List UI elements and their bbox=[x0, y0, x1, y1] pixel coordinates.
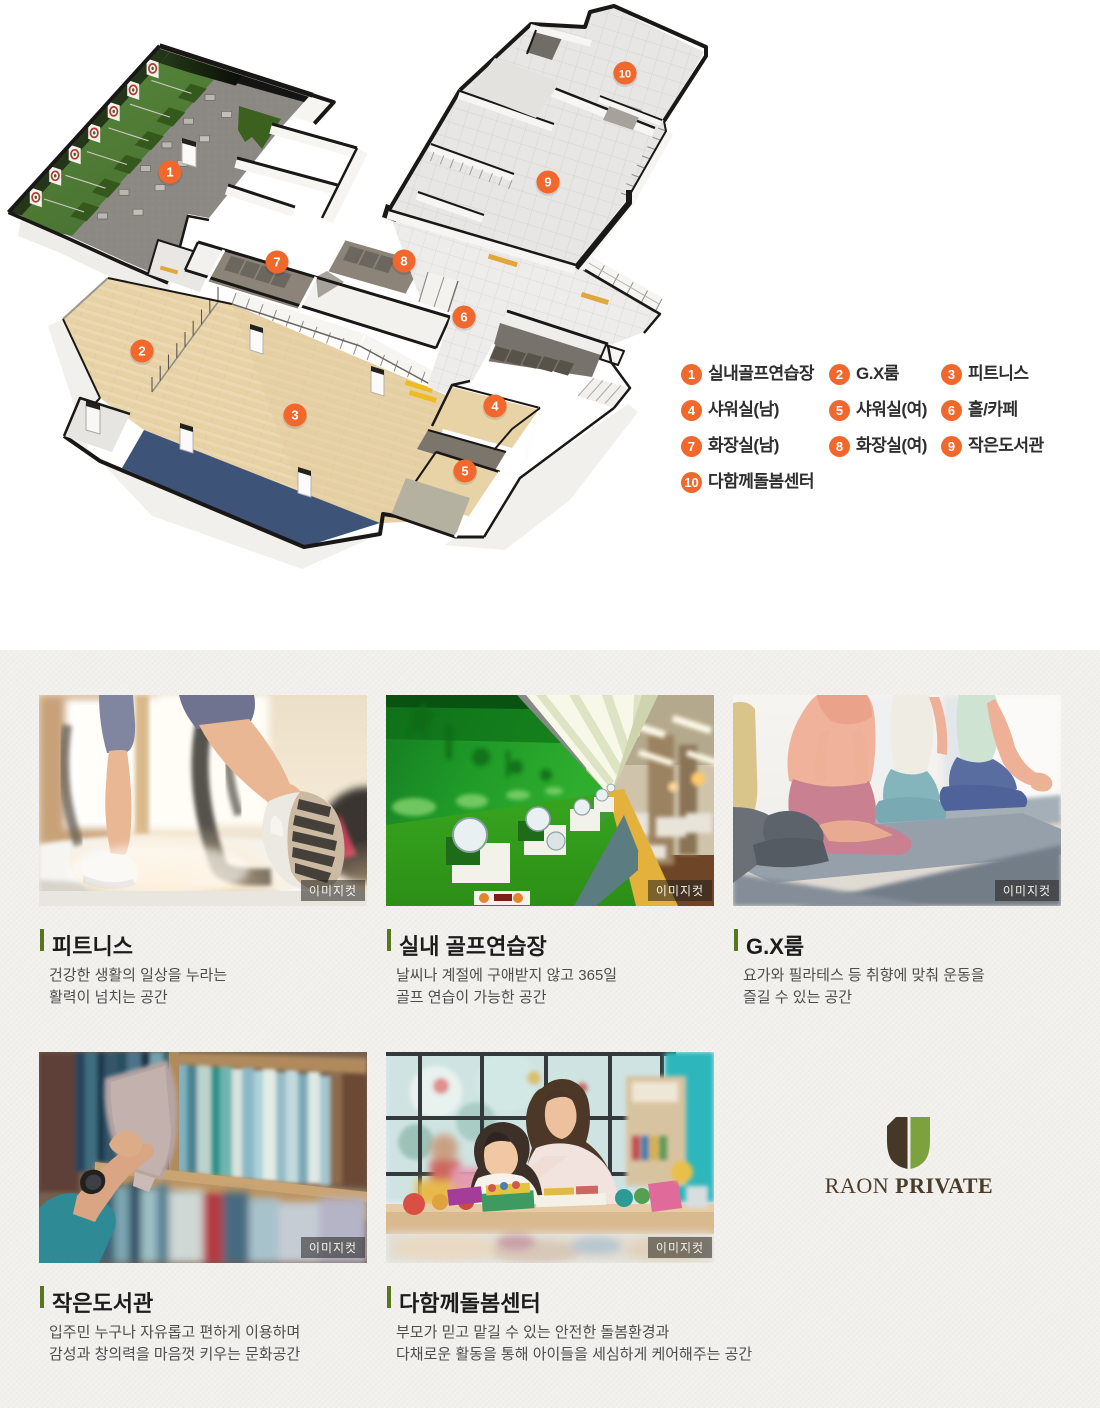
svg-text:이미지컷: 이미지컷 bbox=[309, 1241, 357, 1255]
svg-text:이미지컷: 이미지컷 bbox=[1003, 884, 1051, 898]
svg-text:이미지컷: 이미지컷 bbox=[309, 884, 357, 898]
svg-text:이미지컷: 이미지컷 bbox=[656, 884, 704, 898]
svg-text:RAON PRIVATE: RAON PRIVATE bbox=[825, 1173, 993, 1198]
svg-text:이미지컷: 이미지컷 bbox=[656, 1241, 704, 1255]
